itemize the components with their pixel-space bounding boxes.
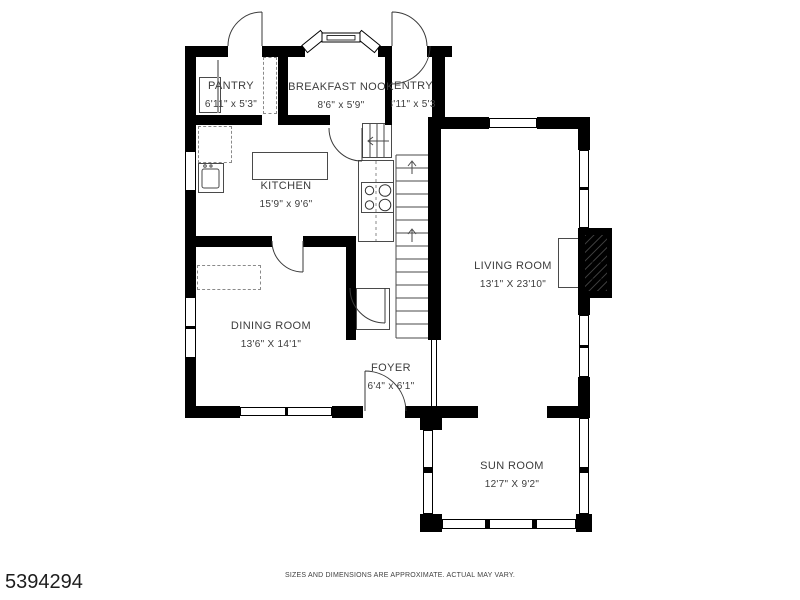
wall-segment [428, 117, 489, 129]
wall-segment [185, 406, 240, 418]
wall-segment [576, 514, 592, 532]
room-label-foyer: FOYER 6'4" x 6'1" [367, 359, 414, 395]
window-mullion [423, 468, 433, 472]
window [185, 151, 196, 191]
window-mullion [486, 519, 489, 529]
room-label-entry: ENTRY 3'11" x 5'3" [391, 77, 436, 117]
window-mullion [579, 345, 589, 348]
wall-segment [303, 236, 356, 247]
window [423, 472, 433, 514]
wall-segment [578, 406, 590, 418]
disclaimer-text: SIZES AND DIMENSIONS ARE APPROXIMATE. AC… [0, 572, 800, 579]
basement-landing [362, 123, 392, 158]
room-dimensions: 13'6" X 14'1" [231, 336, 311, 353]
room-name: KITCHEN [260, 177, 313, 196]
dining-soffit-dashed [197, 265, 261, 290]
room-name: ENTRY [391, 77, 436, 96]
window [489, 118, 537, 128]
room-dimensions: 15'9" x 9'6" [260, 196, 313, 213]
window [579, 472, 589, 514]
wall-segment [578, 117, 590, 150]
wall-segment [420, 514, 442, 532]
window [489, 519, 533, 529]
window [442, 519, 486, 529]
room-dimensions: 6'4" x 6'1" [367, 378, 414, 395]
room-name: LIVING ROOM [474, 257, 552, 276]
listing-id: 5394294 [5, 571, 83, 594]
window-mullion [185, 326, 196, 329]
room-dimensions: 13'1" X 23'10" [474, 276, 552, 293]
room-dimensions: 8'6" x 5'9" [288, 97, 394, 114]
window-mullion [579, 187, 589, 190]
window-mullion [533, 519, 536, 529]
wall-segment [278, 46, 288, 125]
window-mullion [579, 468, 589, 472]
wall-segment [420, 406, 442, 430]
room-label-breakfast-nook: BREAKFAST NOOK 8'6" x 5'9" [288, 78, 394, 114]
room-label-pantry: PANTRY 6'11" x 5'3" [205, 77, 257, 113]
room-name: FOYER [367, 359, 414, 378]
wall-segment [578, 377, 590, 406]
entry-closet-dashed [263, 57, 277, 114]
window [536, 519, 576, 529]
wall-segment [346, 247, 356, 340]
wall-segment [288, 115, 330, 125]
wall-segment [578, 296, 590, 315]
kitchen-island [252, 152, 328, 180]
floor-plan: PANTRY 6'11" x 5'3" BREAKFAST NOOK 8'6" … [0, 0, 800, 600]
window [579, 418, 589, 468]
window [423, 430, 433, 468]
foyer-closet [356, 288, 390, 330]
wall-segment [332, 406, 363, 418]
room-dimensions: 12'7" X 9'2" [480, 476, 544, 493]
room-label-dining-room: DINING ROOM 13'6" X 14'1" [231, 317, 311, 353]
room-dimensions: 6'11" x 5'3" [205, 96, 257, 113]
kitchen-sink [198, 163, 224, 193]
foyer-living-partition [431, 340, 437, 406]
room-label-kitchen: KITCHEN 15'9" x 9'6" [260, 177, 313, 213]
wall-segment [185, 115, 262, 125]
room-name: BREAKFAST NOOK [288, 78, 394, 97]
window-mullion [285, 407, 288, 416]
wall-segment [185, 46, 196, 152]
wall-segment [428, 129, 441, 340]
room-dimensions: 3'11" x 5'3" [391, 96, 436, 113]
room-label-sun-room: SUN ROOM 12'7" X 9'2" [480, 457, 544, 493]
room-name: SUN ROOM [480, 457, 544, 476]
room-name: DINING ROOM [231, 317, 311, 336]
stove [361, 182, 394, 213]
kitchen-cabinets-dashed [198, 126, 232, 163]
room-name: PANTRY [205, 77, 257, 96]
wall-segment [185, 236, 272, 247]
room-label-living-room: LIVING ROOM 13'1" X 23'10" [474, 257, 552, 293]
fireplace-firebox [584, 234, 608, 292]
